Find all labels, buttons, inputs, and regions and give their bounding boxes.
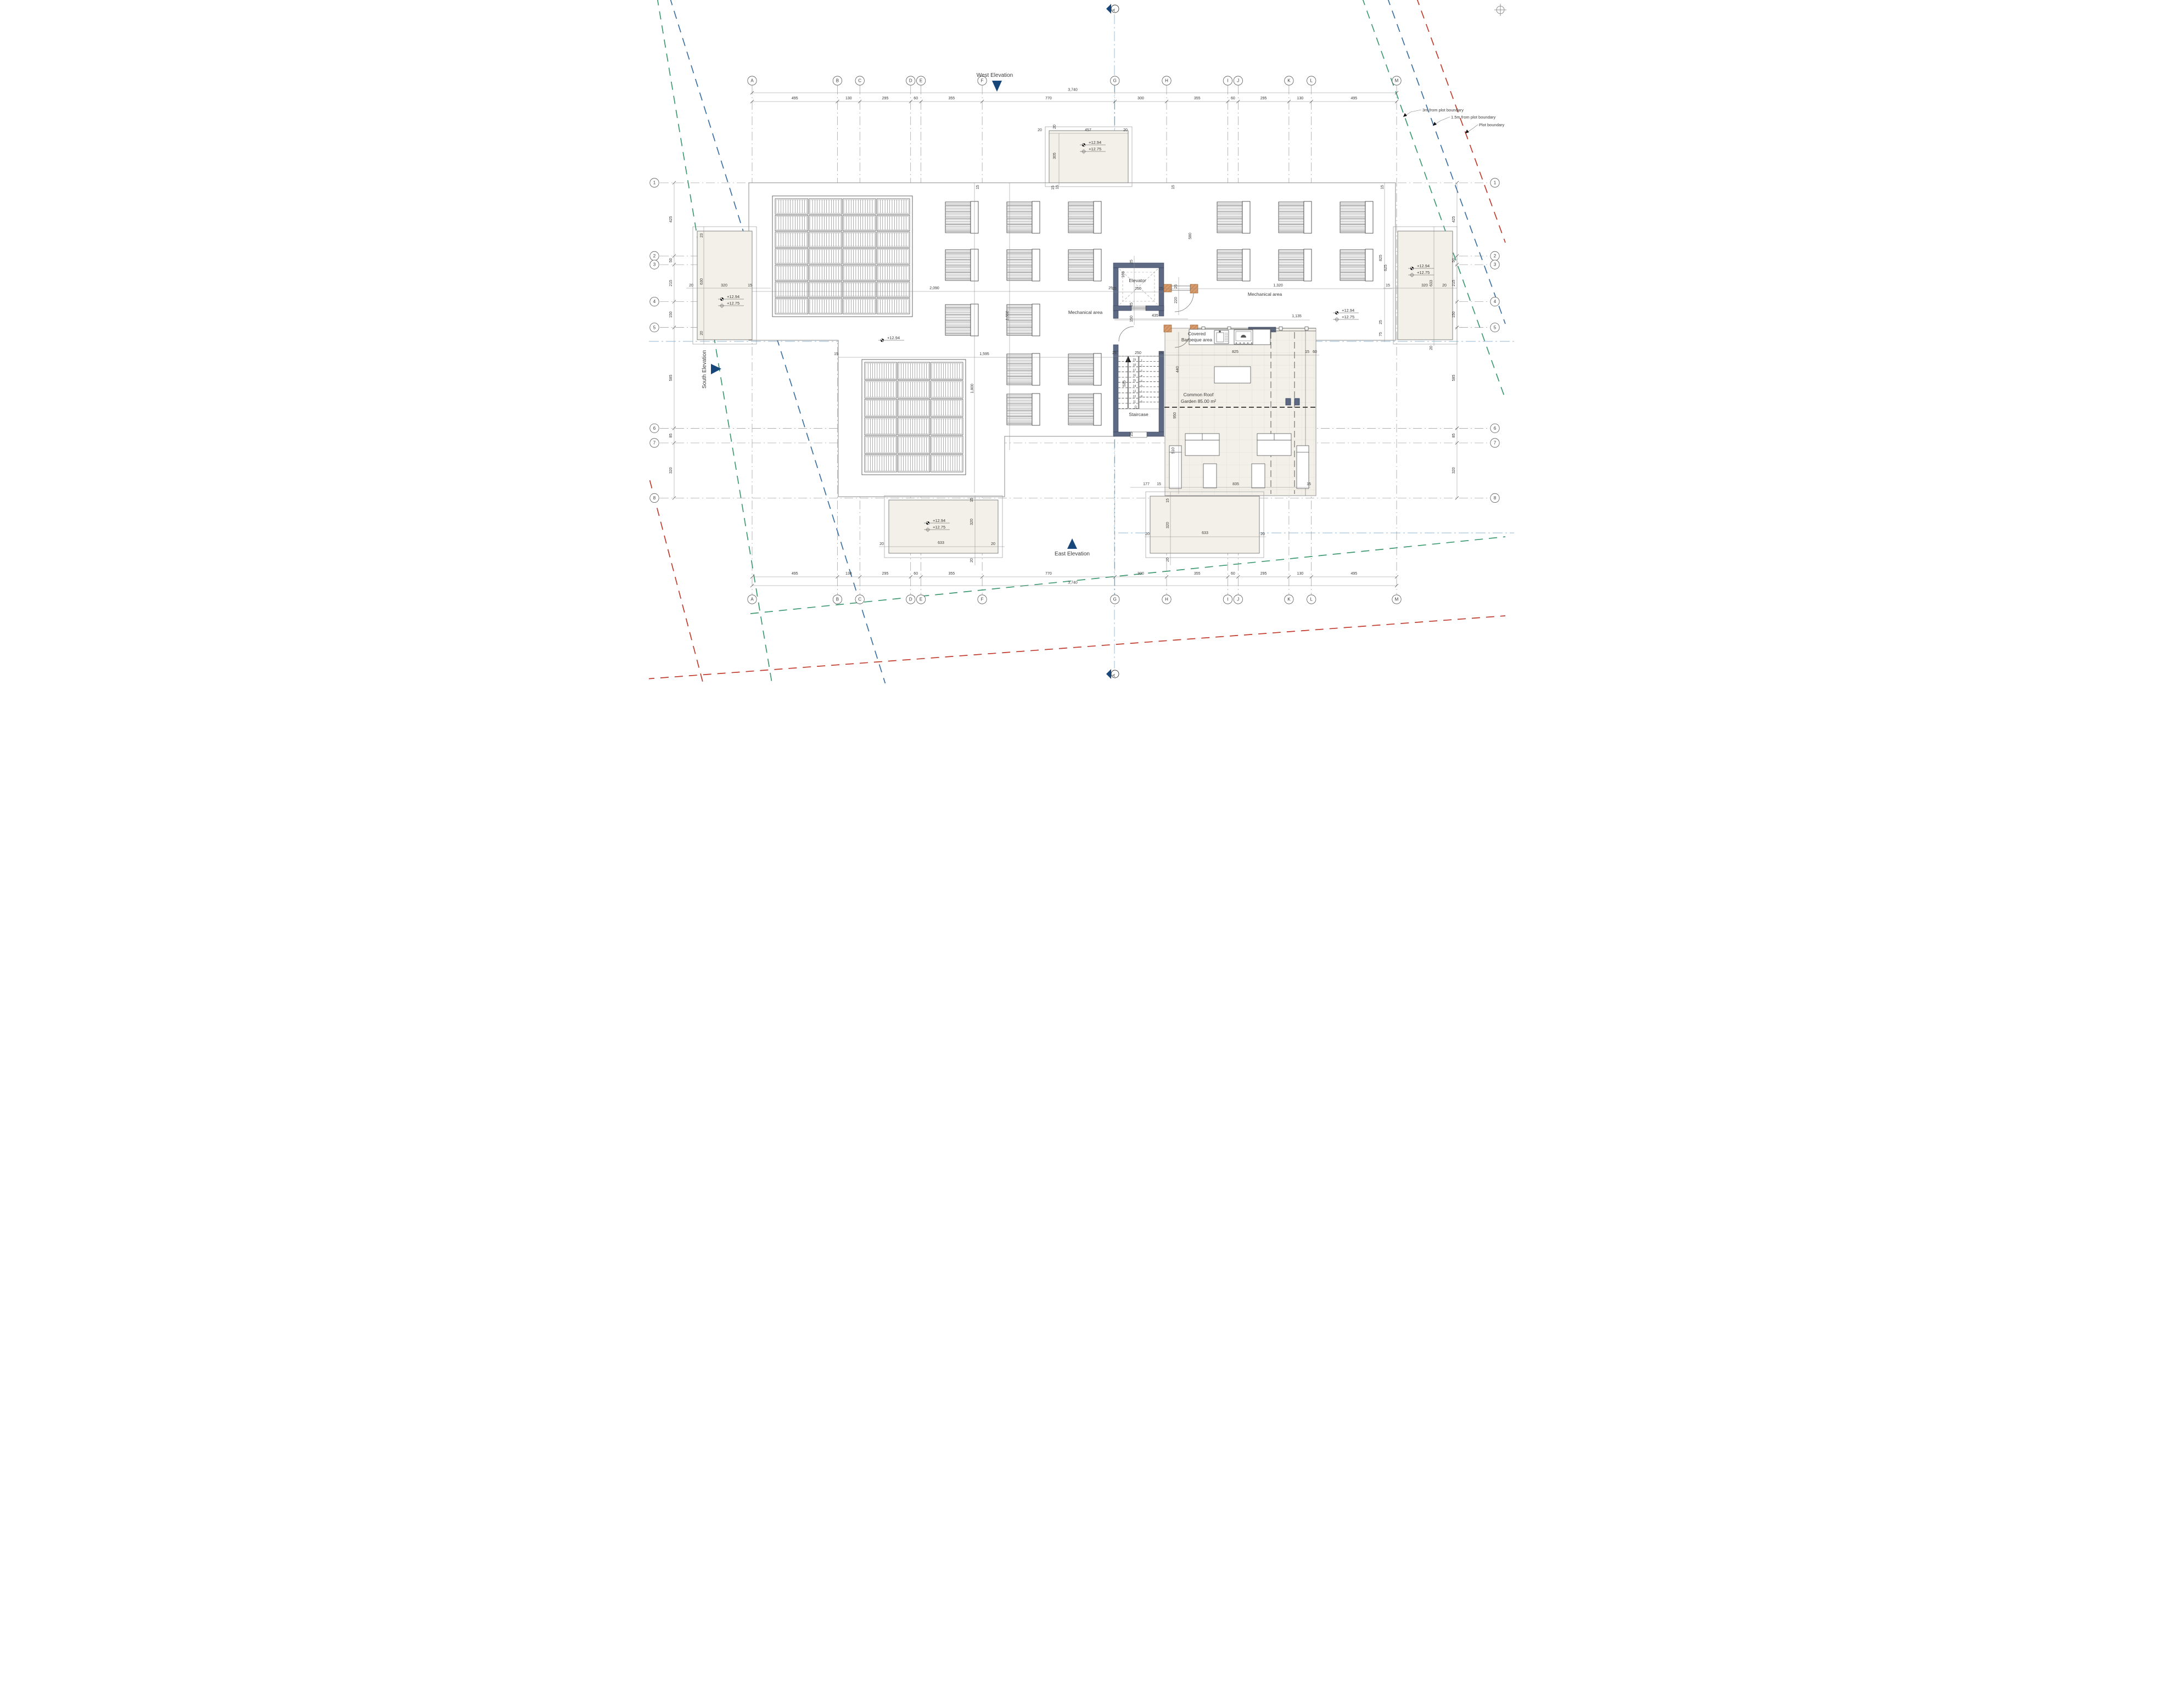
room-label: Garden 85.00 m² <box>1181 398 1216 404</box>
dimension-label: 770 <box>1045 572 1052 576</box>
dimension-label: 633 <box>1430 280 1433 286</box>
dimension-label: 1,800 <box>971 384 974 394</box>
roof-louver-unit <box>1007 304 1040 336</box>
dimension-label: 20 <box>970 558 974 563</box>
dimension-label: 320 <box>1166 522 1170 529</box>
side-table <box>1252 464 1265 488</box>
dimension-label: 130 <box>845 97 852 100</box>
grid-bubble-label: 1 <box>653 181 656 186</box>
dimension-label: 295 <box>882 97 889 100</box>
dimension-label: 150 <box>1452 311 1456 318</box>
island-table <box>1214 367 1251 383</box>
dimension-label: 215 <box>669 280 673 286</box>
dimension-label: 305 <box>1053 153 1057 159</box>
grid-bubble-label: B <box>836 78 839 83</box>
dimension-label: 130 <box>1297 572 1303 576</box>
boundary-line-green <box>750 537 1505 614</box>
stair-step-number: 5 <box>1141 379 1142 382</box>
stair-step-number: 8 <box>1141 394 1142 397</box>
sofa-seat <box>1257 440 1291 456</box>
dimension-label: 25 <box>1130 432 1134 436</box>
dimension-label: 625 <box>1384 265 1388 271</box>
roof-louver-unit <box>1279 201 1312 233</box>
level-value: +12.75 <box>727 301 739 306</box>
dimension-label: 20 <box>1166 558 1170 562</box>
dimension-label: 15 <box>1051 186 1055 190</box>
room-label: Staircase <box>1129 412 1148 417</box>
dimension-label: 495 <box>792 97 798 100</box>
dimension-label: 355 <box>949 572 955 576</box>
dimension-label: 15 <box>748 284 752 288</box>
level-value: +12.94 <box>1089 140 1101 145</box>
grid-bubble-label: G <box>1113 78 1117 83</box>
dimension-label: 495 <box>792 572 798 576</box>
dimension-label: 20 <box>1260 532 1265 536</box>
level-value: +12.75 <box>1089 147 1101 151</box>
room-label: Barbeque area <box>1181 337 1213 342</box>
dimension-label: 630 <box>700 278 704 285</box>
dimension-label: 1,595 <box>979 352 989 356</box>
dimension-label: 25 <box>1379 320 1383 324</box>
grid-bubble-label: F <box>981 78 984 83</box>
roof-louver-unit <box>1068 201 1101 233</box>
grid-bubble-label: E <box>920 78 922 83</box>
dimension-label: 20 <box>1145 532 1150 536</box>
grid-bubble-label: L <box>1310 78 1313 83</box>
roof-louver-unit <box>1007 249 1040 281</box>
grid-bubble-label: 8 <box>653 496 656 501</box>
stair-step-number: 16 <box>1133 374 1136 378</box>
side-table <box>1203 464 1217 488</box>
dimension-label: 320 <box>669 467 673 474</box>
dimension-label: 25 <box>1130 260 1134 264</box>
stair-step-number: 2 <box>1141 363 1142 367</box>
dimension-label: 2,090 <box>929 286 939 290</box>
section-marker: A <box>1106 669 1119 679</box>
dimension-label: 25 <box>1159 287 1163 291</box>
boundary-legend-label: 3m from plot boundary <box>1422 108 1464 113</box>
grid-bubble-label: K <box>1287 78 1291 83</box>
dimension-label: 25 <box>1174 284 1178 289</box>
dimension-label: 320 <box>721 284 727 288</box>
dimension-label: 457 <box>1085 128 1091 132</box>
elevation-triangle-icon <box>1067 538 1077 549</box>
dimension-label: 355 <box>1194 97 1201 100</box>
roof-louver-unit <box>945 249 978 281</box>
section-letter: A <box>1111 9 1116 12</box>
stair-step-number: 11 <box>1133 400 1136 403</box>
grid-bubble-label: M <box>1395 597 1399 602</box>
dimension-label: 295 <box>1260 97 1267 100</box>
grid-bubble-label: 8 <box>1494 496 1497 501</box>
boundary-line-green <box>657 0 772 683</box>
roof-louver-unit <box>1279 249 1312 281</box>
level-value: +12.75 <box>933 525 945 530</box>
dimension-label: 15 <box>1305 350 1309 354</box>
dimension-label: 20 <box>689 284 693 288</box>
dimension-label: 85 <box>1452 434 1456 438</box>
dimension-label: 25 <box>1112 287 1117 291</box>
roof-plan-drawing: 1918171615141312111012345678949549513013… <box>649 0 1514 683</box>
dimension-label: 770 <box>1045 97 1052 100</box>
roof-louver-unit <box>1007 201 1040 233</box>
dimension-label: 495 <box>1351 572 1358 576</box>
dimension-label: 15 <box>1157 482 1161 486</box>
grid-bubble-label: F <box>981 597 984 602</box>
dimension-label: 60 <box>1231 572 1235 576</box>
roof-louver-unit <box>1217 249 1250 281</box>
dimension-label: 50 <box>669 258 673 262</box>
roof-louver-unit <box>1068 249 1101 281</box>
dimension-label: 50 <box>1452 258 1456 262</box>
stair-step-number: 14 <box>1133 385 1136 388</box>
stair-step-number: 17 <box>1133 369 1136 372</box>
dimension-label: 300 <box>1137 97 1144 100</box>
dimension-label: 20 <box>700 331 704 335</box>
dimension-label: 633 <box>938 541 944 545</box>
grid-bubble-label: D <box>909 78 912 83</box>
dimension-label: 130 <box>845 572 852 576</box>
room-label: Mechanical area <box>1068 310 1103 315</box>
stair-step-number: 18 <box>1133 364 1136 367</box>
dimension-label: 825 <box>1379 255 1383 261</box>
dimension-label: 15 <box>970 498 974 502</box>
grid-bubble-label: A <box>750 597 754 602</box>
boundary-legend: 3m from plot boundary1.5m from plot boun… <box>1403 108 1505 133</box>
dimension-label: 15 <box>834 352 838 356</box>
grid-bubble-label: I <box>1227 78 1228 83</box>
grid-bubble-label: H <box>1165 78 1168 83</box>
dimension-label: 585 <box>669 375 673 381</box>
roof-louver-unit <box>1068 394 1101 425</box>
pergola-post <box>1279 327 1282 330</box>
dimension-label: 355 <box>949 97 955 100</box>
section-arrow-icon <box>1106 4 1111 14</box>
level-value: +12.94 <box>1342 308 1354 313</box>
dimension-label: 1,320 <box>1273 284 1283 288</box>
grid-bubble-label: 6 <box>1494 426 1497 431</box>
dimension-label: 25 <box>1130 302 1134 307</box>
dimension-label: 435 <box>1152 314 1158 318</box>
roof-louver-unit <box>1007 394 1040 425</box>
roof-louver-unit <box>1340 201 1373 233</box>
section-marker: A <box>1106 4 1119 14</box>
level-value: +12.75 <box>1417 270 1430 275</box>
elevation-triangle-icon <box>711 364 721 374</box>
dimension-label: 20 <box>879 542 884 546</box>
elevation-marker: South Elevation <box>702 350 721 389</box>
dimension-label: 20 <box>1442 284 1447 288</box>
dimension-label: 950 <box>1173 412 1177 419</box>
dimension-label: 295 <box>1260 572 1267 576</box>
brick-wall-segment <box>1164 284 1172 292</box>
boundary-line-red <box>1416 0 1505 243</box>
dimension-label: 1,550 <box>1006 311 1010 321</box>
elevation-label: East Elevation <box>1055 551 1090 557</box>
dimension-label: 215 <box>1452 280 1456 286</box>
elevation-marker: East Elevation <box>1055 538 1090 557</box>
boundary-legend-label: 1.5m from plot boundary <box>1451 115 1496 120</box>
grid-bubble-label: L <box>1310 597 1313 602</box>
dimension-label: 3,740 <box>1068 581 1078 585</box>
roof-louver-unit <box>1007 353 1040 385</box>
stair-step-number: 13 <box>1133 390 1136 393</box>
dimension-label: 320 <box>970 519 974 525</box>
grid-bubble-label: C <box>858 78 861 83</box>
dimension-label: 15 <box>1172 185 1175 189</box>
room-label: Common Roof <box>1184 392 1214 397</box>
building-footprint <box>693 127 1457 558</box>
dimension-label: 585 <box>1452 375 1456 381</box>
grid-bubble-label: J <box>1237 78 1239 83</box>
grid-bubble-label: M <box>1395 78 1399 83</box>
stair-step-number: 19 <box>1133 358 1136 362</box>
grid-bubble-label: 5 <box>653 325 656 330</box>
dimension-label: 300 <box>1137 572 1144 576</box>
grid-bubble-label: 4 <box>653 299 656 304</box>
dimension-label: 3,740 <box>1068 88 1078 92</box>
dimension-label: 835 <box>1232 482 1239 486</box>
dimension-label: 177 <box>1143 482 1150 486</box>
roof-louver-unit <box>945 304 978 336</box>
dimension-label: 15 <box>1381 185 1385 189</box>
floor-plan-canvas: 1918171615141312111012345678949549513013… <box>649 0 1514 683</box>
grid-bubble-label: C <box>858 597 861 602</box>
level-value: +12.94 <box>1417 263 1430 268</box>
stair-step-number: 12 <box>1133 395 1136 398</box>
brick-wall-segment <box>1164 325 1172 332</box>
grid-bubble-label: 3 <box>1494 262 1497 267</box>
dimension-label: 60 <box>914 97 918 100</box>
grid-bubble-label: 7 <box>1494 441 1497 446</box>
grid-bubble-label: K <box>1287 597 1291 602</box>
grid-bubble-label: 2 <box>1494 254 1497 259</box>
dimension-label: 535 <box>1123 380 1127 387</box>
dimension-label: 25 <box>1159 351 1163 355</box>
grid-bubble-label: H <box>1165 597 1168 602</box>
dimension-label: 60 <box>1313 350 1317 354</box>
dimension-label: 20 <box>1123 128 1128 132</box>
dimension-label: 320 <box>1452 467 1456 474</box>
level-value: +12.94 <box>933 518 945 523</box>
grid-bubble-label: B <box>836 597 839 602</box>
dimension-label: 130 <box>1297 97 1303 100</box>
dimension-label: 15 <box>1386 284 1390 288</box>
dimension-label: 15 <box>976 185 980 189</box>
dimension-label: 150 <box>1130 316 1134 322</box>
grid-bubble-label: 2 <box>653 254 656 259</box>
section-arrow-icon <box>1106 669 1111 679</box>
dimension-label: 295 <box>882 572 889 576</box>
dimension-label: 20 <box>1038 128 1042 132</box>
grid-bubble-label: 1 <box>1494 181 1497 186</box>
dimension-label: 15 <box>1056 185 1060 189</box>
room-label: Covered <box>1188 331 1206 336</box>
grid-bubble-label: 3 <box>653 262 656 267</box>
dimension-label: 425 <box>1452 216 1456 223</box>
grid-bubble-label: 6 <box>653 426 656 431</box>
room-label: Mechanical area <box>1248 291 1282 297</box>
level-value: +12.94 <box>887 335 900 340</box>
grid-bubble-label: 4 <box>1494 299 1497 304</box>
dimension-label: 60 <box>914 572 918 576</box>
dimension-label: 1,135 <box>1292 314 1302 318</box>
dimension-label: 20 <box>1430 346 1433 350</box>
planter <box>1286 398 1291 405</box>
roof-garden-slab <box>1165 328 1316 496</box>
north-roof-block <box>1049 131 1128 183</box>
grid-bubble-label: A <box>750 78 754 83</box>
dimension-label: 25 <box>1108 286 1113 290</box>
grid-bubble-label: G <box>1113 597 1117 602</box>
dimension-label: 355 <box>1194 572 1201 576</box>
sofa-seat <box>1185 440 1219 456</box>
grid-bubble-label: D <box>909 597 912 602</box>
dimension-label: 25 <box>1112 351 1117 355</box>
stair-step-number: 15 <box>1133 379 1136 383</box>
grid-bubble-label: 7 <box>653 441 656 446</box>
dimension-label: 825 <box>1232 350 1239 354</box>
dimension-label: 580 <box>1189 233 1192 239</box>
dimension-label: 150 <box>669 311 673 318</box>
stair-step-number: 4 <box>1141 374 1142 377</box>
dimension-label: 633 <box>1202 531 1208 535</box>
dimension-label: 320 <box>1421 284 1428 288</box>
dimension-label: 425 <box>669 216 673 223</box>
elevation-label: South Elevation <box>702 350 708 389</box>
boundary-line-red <box>649 616 1505 679</box>
stair-step-number: 7 <box>1141 389 1142 392</box>
dimension-label: 15 <box>1307 482 1311 486</box>
stair-step-number: 6 <box>1141 384 1142 387</box>
boundary-legend-label: Plot boundary <box>1479 122 1505 127</box>
stair-step-number: 1 <box>1141 358 1142 362</box>
dimension-label: 20 <box>991 542 995 546</box>
dimension-label: 440 <box>1176 366 1180 373</box>
level-value: +12.75 <box>1342 314 1354 319</box>
dimension-label: 495 <box>1351 97 1358 100</box>
dimension-label: 250 <box>1135 351 1141 355</box>
dimension-label: 220 <box>1174 297 1178 304</box>
dimension-label: 75 <box>1379 332 1383 336</box>
dimension-label: 60 <box>1231 97 1235 100</box>
planter <box>1295 398 1299 405</box>
dimension-label: 15 <box>1166 498 1170 503</box>
grid-bubble-label: 5 <box>1494 325 1497 330</box>
dimension-label: 165 <box>1122 271 1125 278</box>
stair-step-number: 3 <box>1141 369 1142 372</box>
section-letter: A <box>1111 674 1116 677</box>
roof-louver-unit <box>1217 201 1250 233</box>
north-symbol <box>1494 4 1506 16</box>
level-value: +12.94 <box>727 294 739 299</box>
dimension-label: 20 <box>1053 125 1057 129</box>
floor-plan-page: 1918171615141312111012345678949549513013… <box>649 0 1514 683</box>
elevation-label: West Elevation <box>977 72 1013 78</box>
grid-bubble-label: I <box>1227 597 1228 602</box>
elevation-triangle-icon <box>992 81 1002 92</box>
dimension-label: 250 <box>1135 287 1141 291</box>
roof-louver-unit <box>1340 249 1373 281</box>
dimension-label: 510 <box>1172 447 1175 454</box>
dimension-label: 85 <box>669 434 673 438</box>
grid-bubble-label: E <box>920 597 922 602</box>
stair-step-number: 9 <box>1141 399 1142 402</box>
roof-louver-unit <box>1068 353 1101 385</box>
roof-louver-unit <box>945 201 978 233</box>
pergola-post <box>1305 327 1308 330</box>
stair-step-number: 10 <box>1135 406 1138 409</box>
dimension-label: 23 <box>700 233 704 238</box>
room-label: Elevator <box>1129 278 1146 283</box>
grid-bubble-label: J <box>1237 597 1239 602</box>
